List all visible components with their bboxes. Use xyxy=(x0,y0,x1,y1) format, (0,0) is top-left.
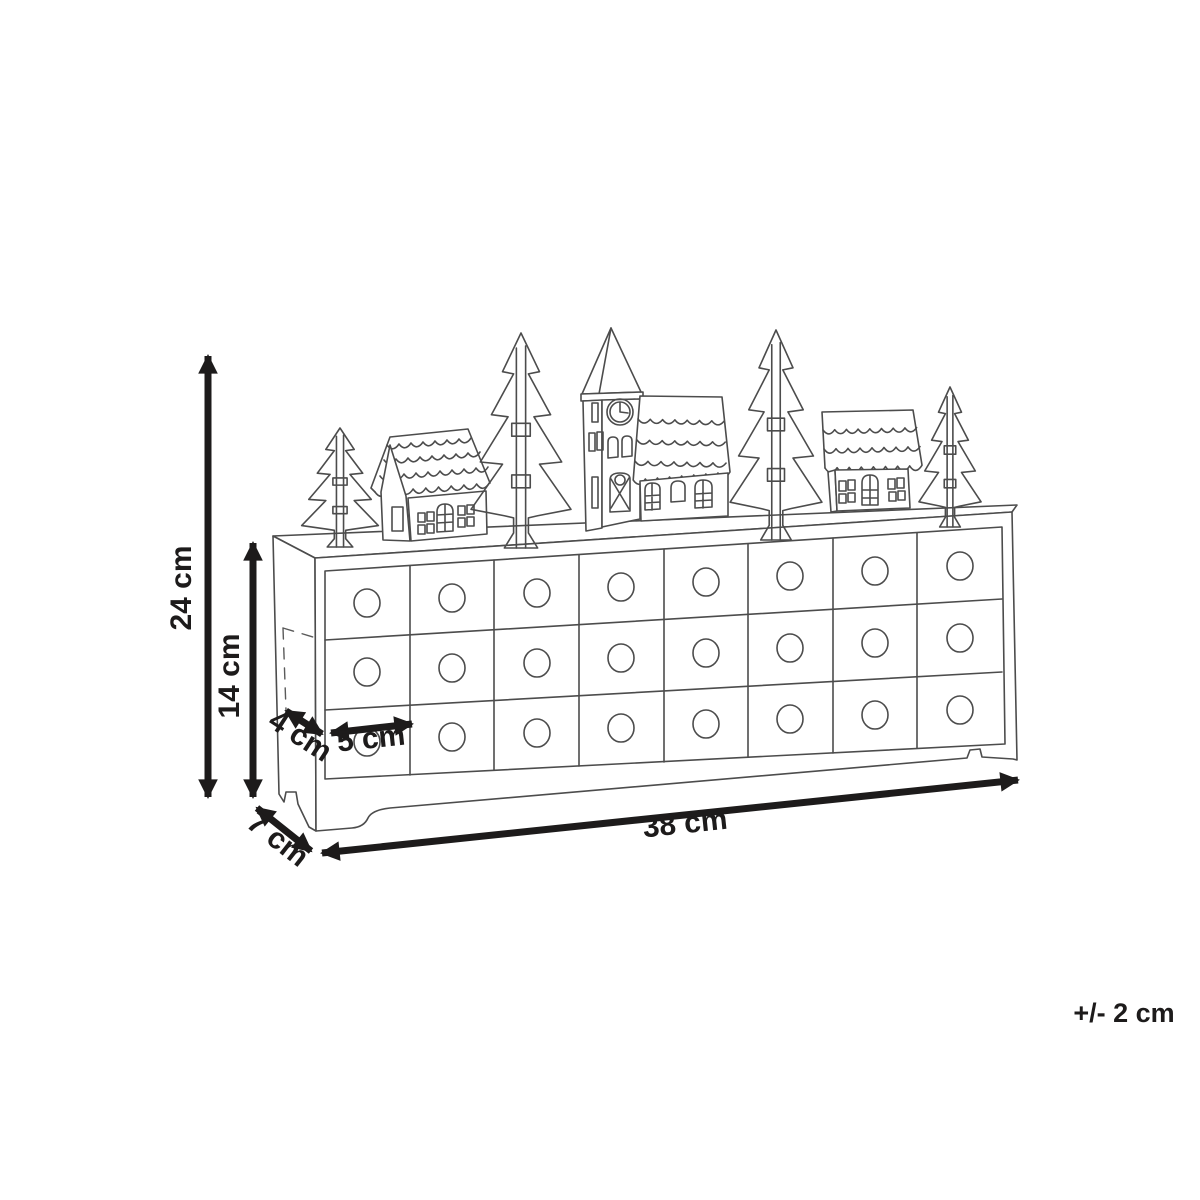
cabinet-front-face xyxy=(315,512,1017,831)
cabinet xyxy=(273,505,1017,831)
house-roof-shingles xyxy=(823,428,922,473)
house-1 xyxy=(371,429,490,541)
dimension-diagram-page: 24 cm 14 cm 4 cm 5 cm 38 cm 7 cm +/- 2 c… xyxy=(0,0,1200,1200)
fir-tree-1 xyxy=(302,428,379,547)
advent-calendar-dimension-drawing: 24 cm 14 cm 4 cm 5 cm 38 cm 7 cm +/- 2 c… xyxy=(0,0,1200,1200)
church-nave-wall xyxy=(640,473,728,521)
fir-tree-4 xyxy=(919,387,981,527)
house-2 xyxy=(822,410,922,512)
church-spire xyxy=(582,328,641,394)
fir-tree-3 xyxy=(730,330,822,540)
dimension-body-height: 14 cm xyxy=(213,543,253,797)
dimension-label-total-width: 38 cm xyxy=(641,803,729,845)
cabinet-side-panel xyxy=(273,536,316,831)
church-nave-roof xyxy=(633,396,730,484)
church xyxy=(581,328,730,531)
tolerance-note: +/- 2 cm xyxy=(1073,998,1174,1028)
dimension-total-height: 24 cm xyxy=(165,356,208,797)
house-roof xyxy=(822,410,922,468)
dimension-label-total-height: 24 cm xyxy=(165,545,198,630)
dimension-label-body-height: 14 cm xyxy=(213,633,246,718)
